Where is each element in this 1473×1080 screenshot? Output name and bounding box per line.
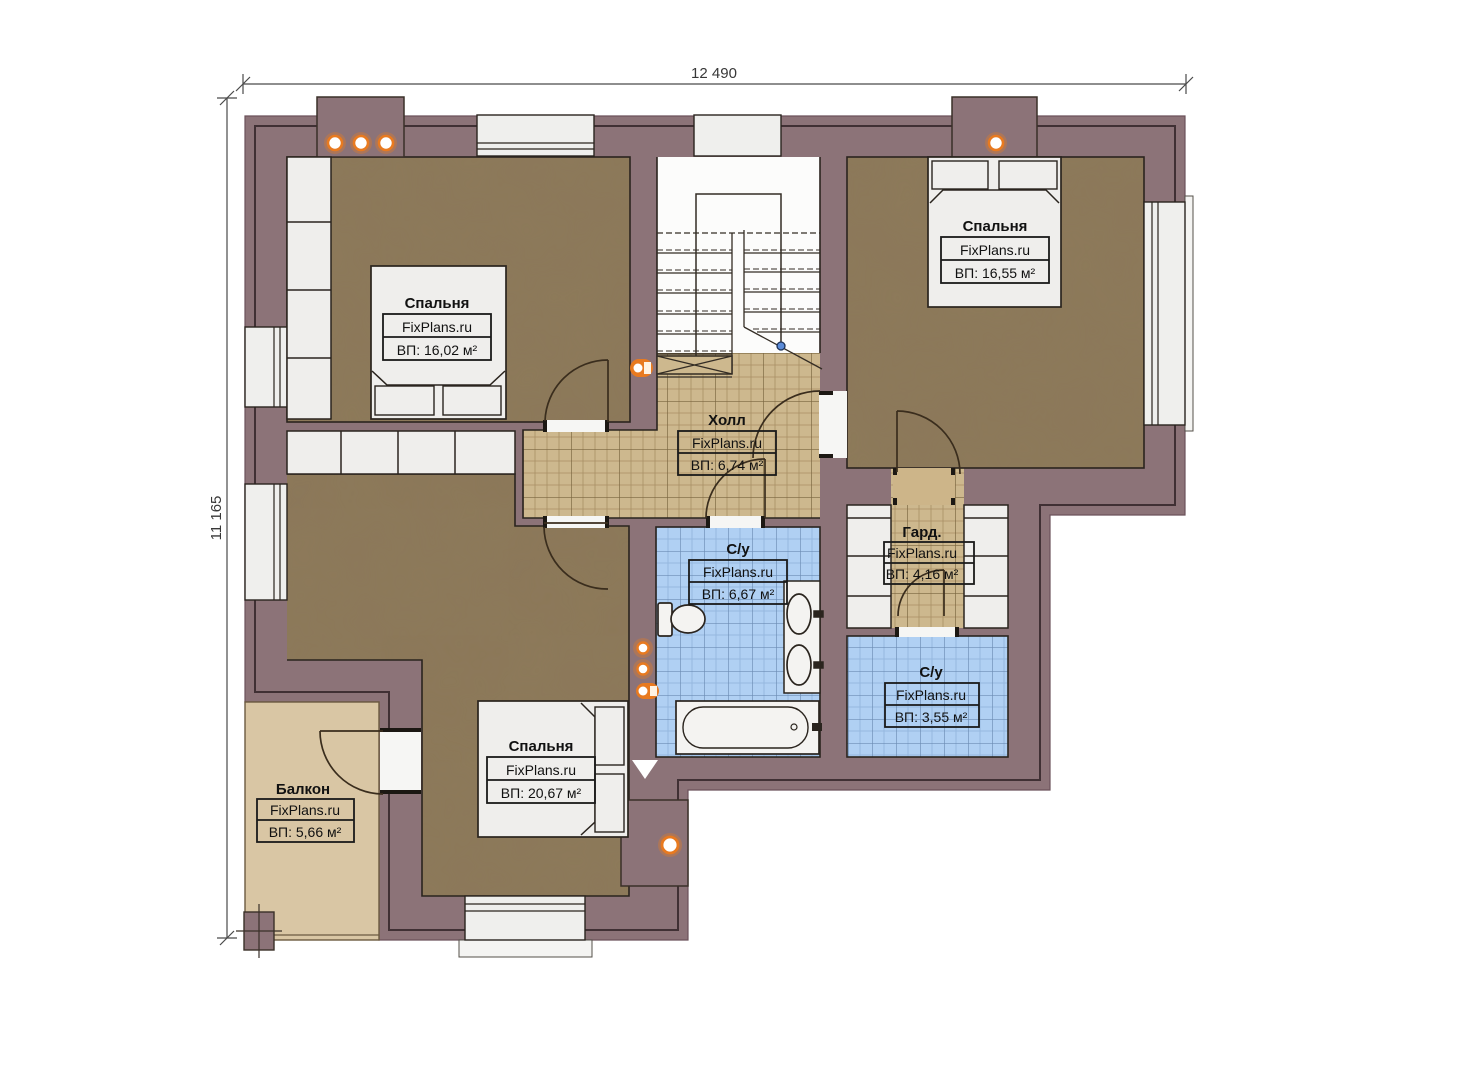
svg-text:ВП: 16,02 м²: ВП: 16,02 м² <box>397 342 478 358</box>
svg-text:ВП: 20,67 м²: ВП: 20,67 м² <box>501 785 582 801</box>
svg-text:11 165: 11 165 <box>208 496 225 541</box>
svg-text:FixPlans.ru: FixPlans.ru <box>887 545 957 561</box>
svg-text:FixPlans.ru: FixPlans.ru <box>960 242 1030 258</box>
svg-text:FixPlans.ru: FixPlans.ru <box>402 319 472 335</box>
svg-text:Гард.: Гард. <box>902 524 941 541</box>
svg-text:ВП: 4,16 м²: ВП: 4,16 м² <box>886 566 959 582</box>
svg-text:С/у: С/у <box>726 541 750 558</box>
svg-text:Спальня: Спальня <box>405 295 470 312</box>
svg-text:ВП: 6,67 м²: ВП: 6,67 м² <box>702 586 775 602</box>
svg-text:Холл: Холл <box>708 412 746 429</box>
svg-text:С/у: С/у <box>919 664 943 681</box>
svg-text:ВП: 16,55 м²: ВП: 16,55 м² <box>955 265 1036 281</box>
svg-text:Спальня: Спальня <box>963 218 1028 235</box>
svg-text:FixPlans.ru: FixPlans.ru <box>270 802 340 818</box>
svg-text:ВП: 6,74 м²: ВП: 6,74 м² <box>691 457 764 473</box>
svg-text:FixPlans.ru: FixPlans.ru <box>703 564 773 580</box>
svg-text:12 490: 12 490 <box>691 65 737 82</box>
svg-text:FixPlans.ru: FixPlans.ru <box>506 762 576 778</box>
svg-text:FixPlans.ru: FixPlans.ru <box>896 687 966 703</box>
svg-text:FixPlans.ru: FixPlans.ru <box>692 435 762 451</box>
svg-text:ВП: 3,55 м²: ВП: 3,55 м² <box>895 709 968 725</box>
svg-text:Спальня: Спальня <box>509 738 574 755</box>
svg-text:ВП: 5,66 м²: ВП: 5,66 м² <box>269 824 342 840</box>
svg-text:Балкон: Балкон <box>276 781 330 798</box>
